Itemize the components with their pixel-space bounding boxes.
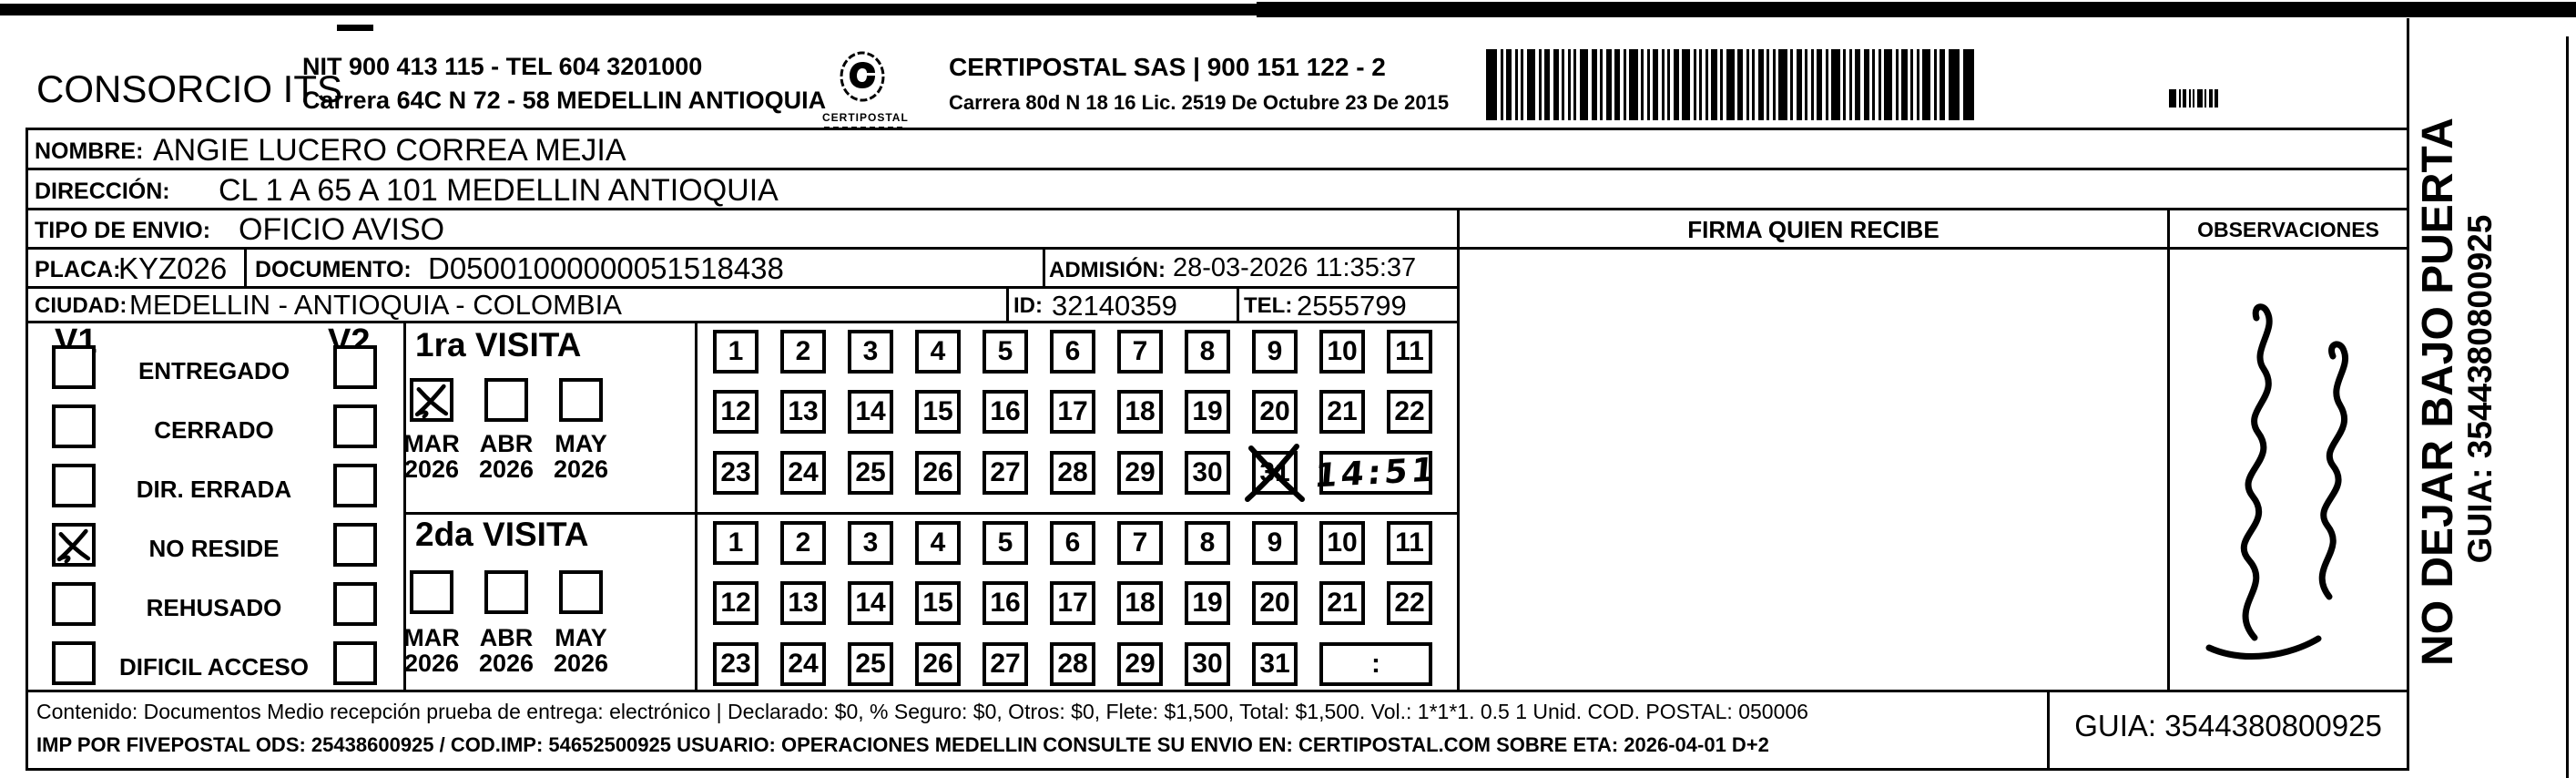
- first-visit-day-cell: 5: [983, 330, 1028, 374]
- second-visit-day-cell: 2: [780, 521, 826, 565]
- barcode-bar: [1674, 49, 1679, 120]
- v2-checkbox-entregado: [333, 345, 377, 389]
- second-visit-day-cell: 1: [713, 521, 759, 565]
- barcode-bar: [1592, 49, 1597, 120]
- documento-label: DOCUMENTO:: [255, 257, 412, 283]
- barcode-bar: [1843, 49, 1846, 120]
- barcode-bar: [1580, 49, 1588, 120]
- barcode-bar: [1544, 49, 1550, 120]
- first-visit-title: 1ra VISITA: [415, 326, 581, 364]
- first-visit-month-label: MAY: [548, 430, 614, 458]
- footer-line2: IMP POR FIVEPOSTAL ODS: 25438600925 / CO…: [36, 733, 1769, 757]
- first-visit-day-cell: 8: [1185, 330, 1230, 374]
- table-line: [1006, 286, 1009, 321]
- barcode-bar: [1606, 49, 1612, 120]
- table-line: [2407, 18, 2409, 771]
- ciudad-value: MEDELLIN - ANTIOQUIA - COLOMBIA: [129, 289, 622, 322]
- v1-checkbox-rehusado: [52, 582, 96, 626]
- status-option-label: DIR. ERRADA: [105, 476, 323, 504]
- table-line: [25, 768, 2409, 771]
- nombre-label: NOMBRE:: [35, 138, 143, 165]
- barcode-bar: [1922, 49, 1930, 120]
- v2-checkbox-no-reside: [333, 523, 377, 567]
- first-visit-day-cell: 9: [1252, 330, 1298, 374]
- first-visit-day-cell: 10: [1319, 330, 1365, 374]
- barcode-bar: [1797, 49, 1802, 120]
- barcode-bar: [1963, 49, 1974, 120]
- handwritten-time: 14:51: [1312, 451, 1439, 495]
- first-visit-day-cell: 13: [780, 390, 826, 434]
- admision-value: 28-03-2026 11:35:37: [1173, 253, 1416, 283]
- second-visit-day-cell: 9: [1252, 521, 1298, 565]
- barcode-bar: [1705, 49, 1708, 120]
- barcode-bar: [1831, 49, 1839, 120]
- barcode-bar: [1562, 49, 1564, 120]
- v1-checkbox-dir-errada: [52, 464, 96, 507]
- firma-header: FIRMA QUIEN RECIBE: [1460, 216, 2167, 244]
- barcode-bar: [2183, 89, 2186, 107]
- status-option-label: CERRADO: [105, 416, 323, 445]
- second-visit-day-cell: 22: [1387, 581, 1432, 625]
- company-name: CONSORCIO ITS: [36, 67, 342, 111]
- direccion-label: DIRECCIÓN:: [35, 179, 170, 205]
- first-visit-day-cell: 2: [780, 330, 826, 374]
- barcode-bar: [1641, 49, 1644, 120]
- table-line: [1043, 247, 1045, 286]
- first-visit-day-cell: 23: [713, 451, 759, 495]
- v1-checkbox-entregado: [52, 345, 96, 389]
- barcode-bar: [1940, 49, 1945, 120]
- second-visit-title: 2da VISITA: [415, 516, 589, 554]
- second-visit-month-checkbox-may: [559, 570, 603, 614]
- second-visit-month-checkbox-mar: [410, 570, 453, 614]
- first-visit-day-cell: 4: [915, 330, 961, 374]
- second-visit-day-cell: 5: [983, 521, 1028, 565]
- barcode-bar: [1817, 49, 1822, 120]
- second-visit-day-cell: 21: [1319, 581, 1365, 625]
- barcode-bar: [1573, 49, 1576, 120]
- second-visit-day-cell: 12: [713, 581, 759, 625]
- second-visit-day-cell: 4: [915, 521, 961, 565]
- barcode-bar: [1568, 49, 1571, 120]
- side-guia: GUIA: 3544380800925: [2461, 181, 2500, 597]
- v1-checkbox-no-reside: [52, 523, 96, 567]
- barcode-bar: [1527, 49, 1535, 120]
- company-address-line: Carrera 64C N 72 - 58 MEDELLIN ANTIOQUIA: [302, 87, 826, 115]
- barcode-bar: [2197, 89, 2203, 107]
- barcode-bar: [2179, 89, 2181, 107]
- second-visit-month-label: MAY: [548, 624, 614, 652]
- second-visit-day-cell: 31: [1252, 642, 1298, 686]
- barcode-bar: [1910, 49, 1913, 120]
- table-line: [695, 321, 697, 690]
- v2-checkbox-dificil-acceso: [333, 641, 377, 685]
- second-visit-day-cell: 18: [1117, 581, 1163, 625]
- status-option-label: REHUSADO: [105, 594, 323, 622]
- second-visit-day-cell: 24: [780, 642, 826, 686]
- first-visit-month-checkbox-mar: [410, 378, 453, 422]
- barcode-bar: [1864, 49, 1869, 120]
- barcode-bar: [1647, 49, 1650, 120]
- barcode-bar: [1629, 49, 1637, 120]
- second-visit-month-checkbox-abr: [484, 570, 528, 614]
- barcode-bar: [1614, 49, 1620, 120]
- second-visit-month-label: MAR: [399, 624, 464, 652]
- logo-caption: CERTIPOSTAL: [822, 111, 904, 124]
- observaciones-header: OBSERVACIONES: [2170, 218, 2407, 242]
- barcode-bar: [1506, 49, 1512, 120]
- handwritten-note: [2184, 278, 2388, 665]
- first-visit-day-cell: 22: [1387, 390, 1432, 434]
- first-visit-day-cell: 26: [915, 451, 961, 495]
- first-visit-month-checkbox-abr: [484, 378, 528, 422]
- first-visit-day-cell: 19: [1185, 390, 1230, 434]
- certipostal-name-line: CERTIPOSTAL SAS | 900 151 122 - 2: [949, 53, 1386, 82]
- first-visit-month-checkbox-may: [559, 378, 603, 422]
- second-visit-day-cell: 10: [1319, 521, 1365, 565]
- placa-label: PLACA:: [35, 257, 120, 283]
- table-line: [1237, 286, 1239, 321]
- id-value: 32140359: [1052, 290, 1177, 322]
- barcode-bar: [1662, 49, 1665, 120]
- time-colon: :: [1371, 649, 1380, 680]
- first-visit-time-box: 14:51: [1319, 451, 1432, 495]
- v1-checkbox-dificil-acceso: [52, 641, 96, 685]
- second-visit-day-cell: 14: [848, 581, 893, 625]
- barcode-bar: [1773, 49, 1776, 120]
- second-visit-day-cell: 20: [1252, 581, 1298, 625]
- barcode-bar: [2204, 89, 2206, 107]
- tipo-envio-value: OFICIO AVISO: [239, 212, 444, 248]
- scan-dash-artifact: [337, 25, 373, 31]
- first-visit-day-cell: 15: [915, 390, 961, 434]
- second-visit-day-cell: 27: [983, 642, 1028, 686]
- barcode-bar: [1872, 49, 1875, 120]
- placa-value: KYZ026: [118, 251, 227, 286]
- barcode-bar: [1737, 49, 1743, 120]
- second-visit-day-cell: 8: [1185, 521, 1230, 565]
- certipostal-address-line: Carrera 80d N 18 16 Lic. 2519 De Octubre…: [949, 91, 1449, 115]
- barcode-bar: [1949, 49, 1960, 120]
- barcode: [1486, 49, 1978, 120]
- second-visit-day-cell: 23: [713, 642, 759, 686]
- company-nit-line: NIT 900 413 115 - TEL 604 3201000: [302, 53, 702, 81]
- table-line: [25, 128, 28, 771]
- barcode-bar: [1667, 49, 1670, 120]
- second-visit-day-cell: 7: [1117, 521, 1163, 565]
- side-warning: NO DEJAR BAJO PUERTA: [2415, 109, 2462, 674]
- first-visit-month-label: MAR: [399, 430, 464, 458]
- second-visit-day-cell: 29: [1117, 642, 1163, 686]
- second-visit-day-cell: 11: [1387, 521, 1432, 565]
- second-visit-day-cell: 13: [780, 581, 826, 625]
- table-line: [244, 247, 247, 286]
- guia-box-value: GUIA: 3544380800925: [2050, 709, 2407, 743]
- barcode-bar: [1624, 49, 1626, 120]
- barcode-bar: [1539, 49, 1542, 120]
- barcode-bar: [1811, 49, 1814, 120]
- barcode-bar: [2189, 89, 2191, 107]
- v2-checkbox-cerrado: [333, 404, 377, 448]
- barcode-bar: [1934, 49, 1937, 120]
- barcode-bar: [1917, 49, 1919, 120]
- barcode-bar: [1778, 49, 1787, 120]
- direccion-value: CL 1 A 65 A 101 MEDELLIN ANTIOQUIA: [219, 173, 779, 209]
- first-visit-day-cell: 28: [1050, 451, 1095, 495]
- first-visit-day-cell: 18: [1117, 390, 1163, 434]
- barcode-bar: [1726, 49, 1735, 120]
- table-line: [25, 690, 2409, 692]
- nombre-value: ANGIE LUCERO CORREA MEJIA: [153, 133, 626, 169]
- barcode-bar: [1849, 49, 1852, 120]
- documento-value: D05001000000051518438: [428, 251, 784, 286]
- first-visit-day-cell: 21: [1319, 390, 1365, 434]
- barcode-bar: [1486, 49, 1497, 120]
- barcode-bar: [1767, 49, 1769, 120]
- barcode-bar: [1752, 49, 1755, 120]
- second-visit-day-cell: 6: [1050, 521, 1095, 565]
- first-visit-day-cell: 1: [713, 330, 759, 374]
- barcode-bar: [1694, 49, 1696, 120]
- barcode-bar: [2215, 89, 2218, 107]
- barcode-bar: [1720, 49, 1723, 120]
- first-visit-day-cell: 6: [1050, 330, 1095, 374]
- status-option-label: NO RESIDE: [105, 535, 323, 563]
- second-visit-day-cell: 3: [848, 521, 893, 565]
- scan-edge-top-right: [1257, 2, 2576, 17]
- handwritten-x-icon: [1240, 441, 1309, 505]
- first-visit-year-label: 2026: [473, 456, 539, 484]
- footer-line1: Contenido: Documentos Medio recepción pr…: [36, 700, 1808, 724]
- second-visit-year-label: 2026: [548, 650, 614, 678]
- barcode-bar: [1901, 49, 1907, 120]
- id-label: ID:: [1013, 293, 1043, 319]
- barcode-bar: [2209, 89, 2213, 107]
- first-visit-day-cell: 24: [780, 451, 826, 495]
- v2-checkbox-rehusado: [333, 582, 377, 626]
- barcode-bar: [1879, 49, 1881, 120]
- barcode-bar: [1790, 49, 1793, 120]
- barcode-bar: [1884, 49, 1892, 120]
- second-visit-day-cell: 19: [1185, 581, 1230, 625]
- barcode-bar: [1553, 49, 1559, 120]
- second-visit-time-box: :: [1319, 642, 1432, 686]
- barcode-bar: [2193, 89, 2194, 107]
- barcode-bar: [2169, 89, 2176, 107]
- status-option-label: DIFICIL ACCESO: [105, 653, 323, 681]
- table-line: [25, 128, 2409, 130]
- first-visit-year-label: 2026: [399, 456, 464, 484]
- second-visit-day-cell: 15: [915, 581, 961, 625]
- first-visit-day-cell: 7: [1117, 330, 1163, 374]
- barcode-bar: [1682, 49, 1690, 120]
- first-visit-day-cell: 11: [1387, 330, 1432, 374]
- first-visit-day-cell: 27: [983, 451, 1028, 495]
- first-visit-day-cell: 14: [848, 390, 893, 434]
- barcode-bar: [1826, 49, 1828, 120]
- second-visit-day-cell: 25: [848, 642, 893, 686]
- first-visit-year-label: 2026: [548, 456, 614, 484]
- barcode-bar: [1758, 49, 1764, 120]
- barcode-fragment: [2169, 89, 2224, 107]
- first-visit-day-cell: 12: [713, 390, 759, 434]
- certipostal-logo: [833, 49, 891, 107]
- tel-value: 2555799: [1297, 290, 1407, 322]
- ciudad-label: CIUDAD:: [35, 293, 127, 319]
- second-visit-month-label: ABR: [473, 624, 539, 652]
- first-visit-day-cell: 20: [1252, 390, 1298, 434]
- second-visit-year-label: 2026: [399, 650, 464, 678]
- second-visit-day-cell: 17: [1050, 581, 1095, 625]
- second-visit-year-label: 2026: [473, 650, 539, 678]
- v1-checkbox-cerrado: [52, 404, 96, 448]
- scan-edge-right: [2566, 36, 2569, 778]
- barcode-bar: [1746, 49, 1749, 120]
- v2-checkbox-dir-errada: [333, 464, 377, 507]
- first-visit-day-cell: 25: [848, 451, 893, 495]
- barcode-bar: [1896, 49, 1899, 120]
- first-visit-day-cell: 29: [1117, 451, 1163, 495]
- barcode-bar: [1501, 49, 1503, 120]
- table-line: [403, 512, 1460, 515]
- tipo-envio-label: TIPO DE ENVIO:: [35, 218, 210, 244]
- second-visit-day-cell: 26: [915, 642, 961, 686]
- admision-label: ADMISIÓN:: [1049, 258, 1166, 283]
- second-visit-day-cell: 30: [1185, 642, 1230, 686]
- barcode-bar: [1600, 49, 1603, 120]
- waybill-document: CONSORCIO ITS NIT 900 413 115 - TEL 604 …: [0, 0, 2576, 778]
- second-visit-day-cell: 28: [1050, 642, 1095, 686]
- barcode-bar: [1805, 49, 1807, 120]
- tel-label: TEL:: [1244, 293, 1292, 319]
- barcode-bar: [1699, 49, 1702, 120]
- barcode-bar: [1855, 49, 1860, 120]
- barcode-bar: [1521, 49, 1523, 120]
- barcode-bar: [1711, 49, 1716, 120]
- table-line: [1457, 208, 1460, 690]
- first-visit-day-cell: 17: [1050, 390, 1095, 434]
- first-visit-day-cell: 3: [848, 330, 893, 374]
- barcode-bar: [1653, 49, 1658, 120]
- table-line: [2167, 208, 2170, 690]
- status-option-label: ENTREGADO: [105, 357, 323, 385]
- first-visit-day-cell: 16: [983, 390, 1028, 434]
- barcode-bar: [1515, 49, 1518, 120]
- first-visit-month-label: ABR: [473, 430, 539, 458]
- first-visit-day-cell: 30: [1185, 451, 1230, 495]
- second-visit-day-cell: 16: [983, 581, 1028, 625]
